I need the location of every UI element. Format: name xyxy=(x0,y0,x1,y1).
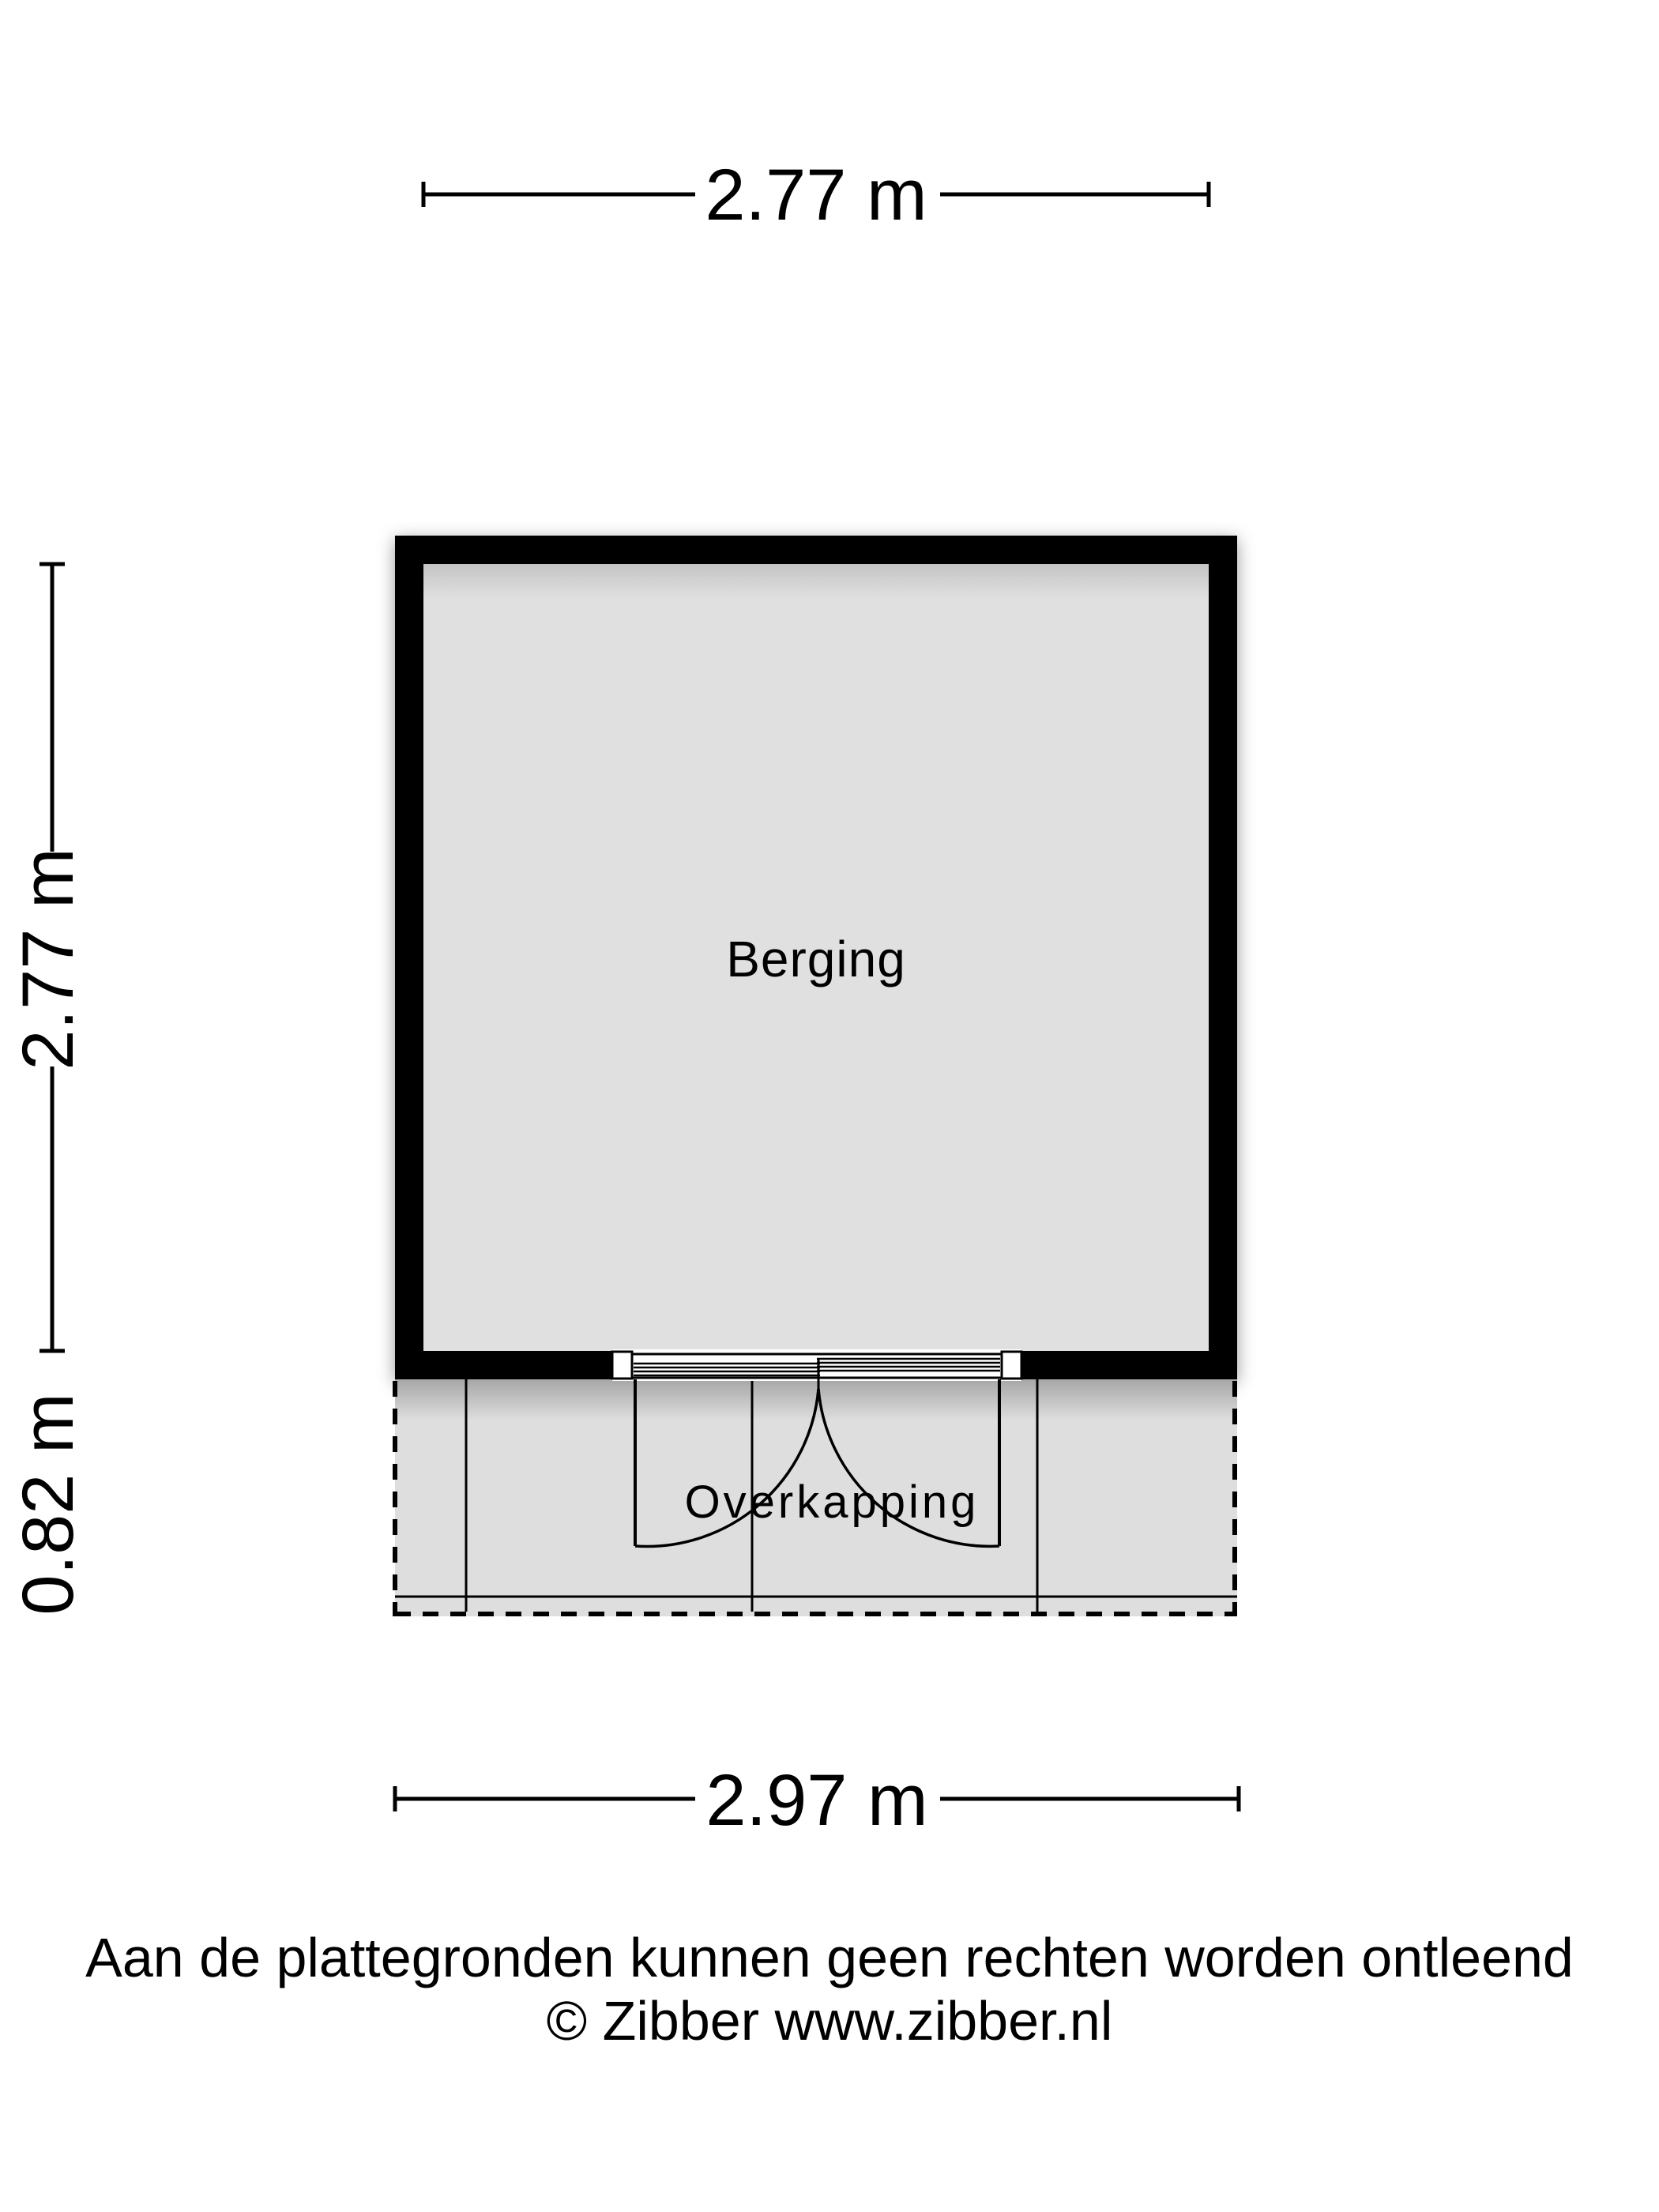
dimension-bottom-width: 2.97 m xyxy=(395,1760,1239,1841)
floorplan-page: Berging Overkapping 2.77 m 2.77 m 0.82 m xyxy=(0,0,1659,2212)
door-jamb-left xyxy=(612,1352,632,1379)
dimension-label-left-height: 2.77 m xyxy=(8,848,88,1070)
footer-credit: © Zibber www.zibber.nl xyxy=(547,1990,1113,2052)
dimension-left-height: 2.77 m xyxy=(8,564,88,1351)
dimension-label-bottom-width: 2.97 m xyxy=(705,1760,927,1841)
dimension-label-top-width: 2.77 m xyxy=(705,155,927,235)
canopy-label: Overkapping xyxy=(685,1477,980,1528)
room-inner-shadow xyxy=(423,564,1209,599)
door-jamb-right xyxy=(1002,1352,1021,1379)
dimension-top-width: 2.77 m xyxy=(423,155,1209,235)
dimension-label-canopy-depth: 0.82 m xyxy=(8,1393,88,1615)
footer-disclaimer: Aan de plattegronden kunnen geen rechten… xyxy=(85,1927,1574,1988)
room-label: Berging xyxy=(726,931,906,987)
floorplan-canvas: Berging Overkapping 2.77 m 2.77 m 0.82 m xyxy=(0,0,1659,2212)
